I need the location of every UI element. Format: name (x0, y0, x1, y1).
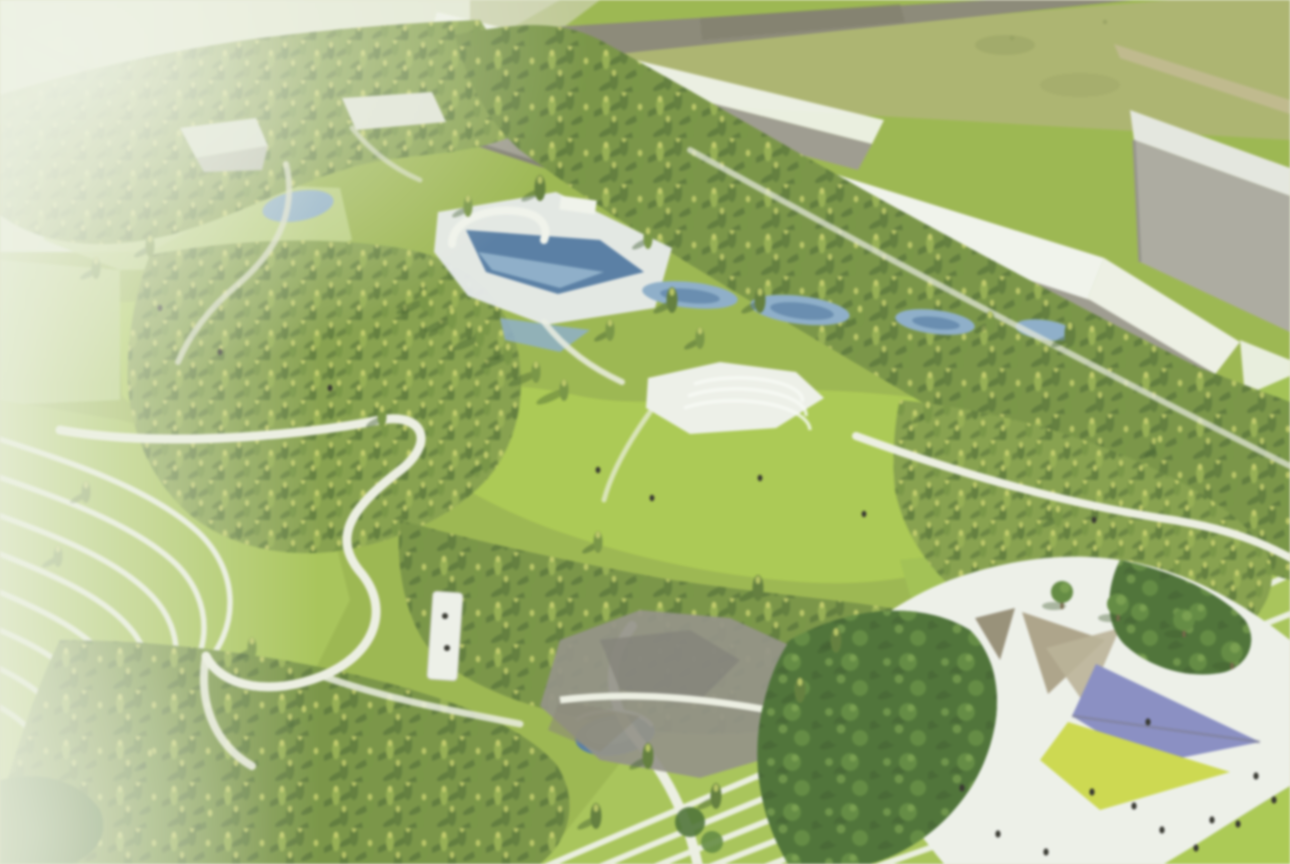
screenshot-frame (0, 0, 1290, 864)
bottom-left-haze (0, 560, 340, 864)
park-aerial-rendering (0, 0, 1290, 864)
rendering-soft-focus-wrapper (0, 0, 1290, 864)
glare-overlays (0, 0, 1290, 864)
top-left-glare (0, 0, 620, 400)
